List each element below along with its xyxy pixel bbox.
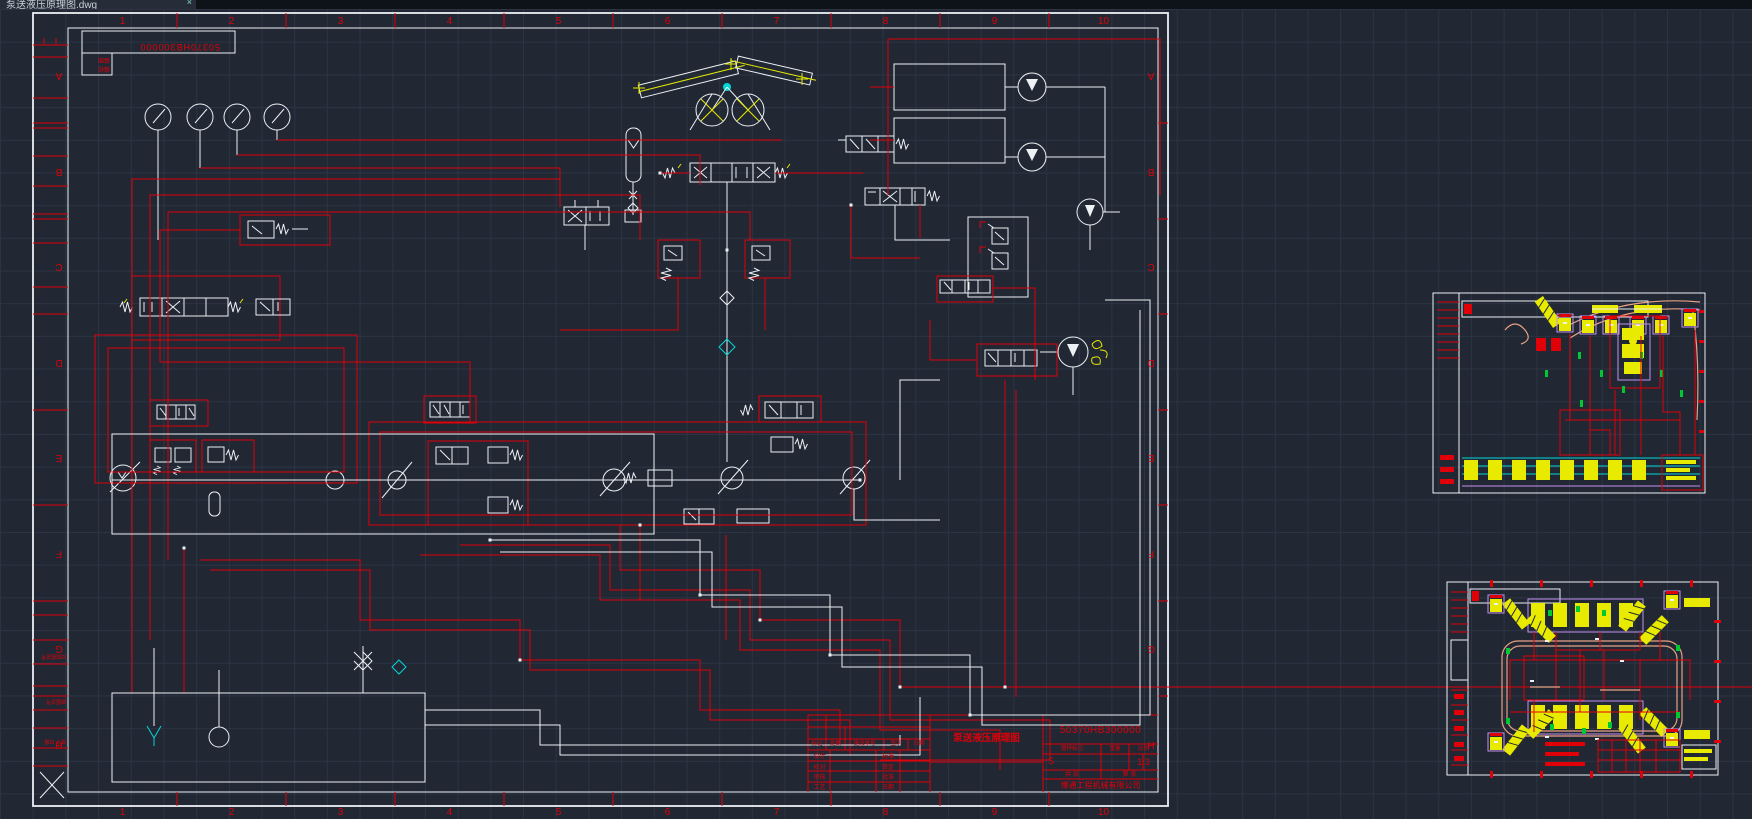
change-header-sign: 签字 xyxy=(884,740,908,749)
zone-letter: H xyxy=(52,697,66,792)
pressure-reducer-stack xyxy=(937,217,1028,302)
preview-drawing-1 xyxy=(1433,293,1705,493)
sheet-count-total: 共 张 xyxy=(1043,770,1101,779)
zone-letter: E xyxy=(52,410,66,505)
zone-letter: H xyxy=(1144,697,1158,792)
zone-letter: D xyxy=(1144,315,1158,410)
mid-pump-circles xyxy=(600,396,870,524)
change-header-count: 处数 xyxy=(826,740,845,749)
file-tab[interactable]: 泵送液压原理图.dwg × xyxy=(0,0,196,9)
zone-number: 6 xyxy=(613,807,722,819)
zone-number: 4 xyxy=(395,15,504,28)
left-relief-valve xyxy=(240,215,330,245)
zone-number: 6 xyxy=(613,15,722,28)
stamp-label-2: 描校 xyxy=(84,65,110,71)
zone-letter: C xyxy=(1144,219,1158,314)
zone-letter: F xyxy=(1144,506,1158,601)
zone-number: 3 xyxy=(286,807,395,819)
pilot-valve xyxy=(564,200,641,250)
sign-row-design: 设计 xyxy=(809,752,830,761)
title-block-company: 博通工程机械有限公司 xyxy=(1043,780,1158,791)
file-tab-bar: 泵送液压原理图.dwg × xyxy=(0,0,1752,9)
zone-letter: B xyxy=(1144,124,1158,219)
zone-number: 7 xyxy=(722,807,831,819)
model-space-canvas[interactable] xyxy=(0,9,1752,819)
sign-row-approve: 批准 xyxy=(877,773,899,782)
zone-number: 7 xyxy=(722,15,831,28)
mark-label-weight: 重量 xyxy=(1101,745,1129,754)
right-pump-units xyxy=(894,64,1120,395)
sign-row-date: 日期 xyxy=(877,783,899,792)
zone-letter: A xyxy=(1144,28,1158,123)
zone-number: 2 xyxy=(177,15,286,28)
cad-application-window: 泵送液压原理图.dwg × xyxy=(0,0,1752,819)
zone-number: 1 xyxy=(68,807,177,819)
sign-row-check: 校对 xyxy=(809,763,830,772)
drawing-linework xyxy=(0,0,1752,819)
change-header-orderno: 更改单号 xyxy=(845,740,884,749)
zone-letter: E xyxy=(1144,410,1158,505)
zone-letter: A xyxy=(52,28,66,123)
zone-letter: B xyxy=(52,124,66,219)
change-header-date: 日期 xyxy=(908,740,930,749)
zone-number: 5 xyxy=(504,15,613,28)
preview-drawing-2 xyxy=(1447,580,1721,778)
right-directional-valve xyxy=(838,136,940,205)
sign-row-examine: 审定 xyxy=(877,763,899,772)
oil-tank xyxy=(112,646,425,782)
zone-letter: D xyxy=(52,315,66,410)
hydraulic-lines-red xyxy=(95,39,1752,770)
zone-number: 8 xyxy=(831,15,940,28)
accumulator-symbol xyxy=(626,128,641,215)
tab-close-icon[interactable]: × xyxy=(187,0,192,7)
zone-number: 3 xyxy=(286,15,395,28)
boom-cylinder-assembly xyxy=(633,55,817,130)
zone-number: 1 xyxy=(68,15,177,28)
sign-row-standard: 标准 xyxy=(877,752,899,761)
title-block-doc-number: 50370HB300000 xyxy=(1043,722,1158,740)
center-valve-group xyxy=(326,396,528,525)
junction-dots xyxy=(183,172,1007,717)
stamp-label-1: 描图 xyxy=(84,56,110,62)
zone-number: 10 xyxy=(1049,15,1158,28)
zone-letter: G xyxy=(1144,601,1158,696)
pressure-gauges xyxy=(145,104,290,240)
relief-valve-pair xyxy=(658,240,790,281)
zone-number: 9 xyxy=(940,15,1049,28)
sign-row-audit: 审核 xyxy=(809,773,830,782)
change-header-mark: 标记 xyxy=(808,740,826,749)
zone-letter: G xyxy=(52,601,66,696)
left-valve-bank xyxy=(120,276,290,340)
mark-value-s: S xyxy=(1048,757,1054,766)
stamp-doc-number: 50370HB300000 xyxy=(90,33,220,51)
zone-number: 10 xyxy=(1049,807,1158,819)
zone-letter: C xyxy=(52,219,66,314)
mark-label-drawing-mark: 图样标记 xyxy=(1043,745,1101,754)
zone-number: 5 xyxy=(504,807,613,819)
zone-number: 4 xyxy=(395,807,504,819)
zone-number: 2 xyxy=(177,807,286,819)
zone-letter: F xyxy=(52,506,66,601)
center-line-filters xyxy=(719,182,735,462)
file-tab-title: 泵送液压原理图.dwg xyxy=(6,0,97,9)
title-block-drawing-title: 泵送液压原理图 xyxy=(930,728,1043,750)
sign-row-craft: 工艺 xyxy=(809,783,830,792)
zone-number: 9 xyxy=(940,807,1049,819)
zone-number: 8 xyxy=(831,807,940,819)
